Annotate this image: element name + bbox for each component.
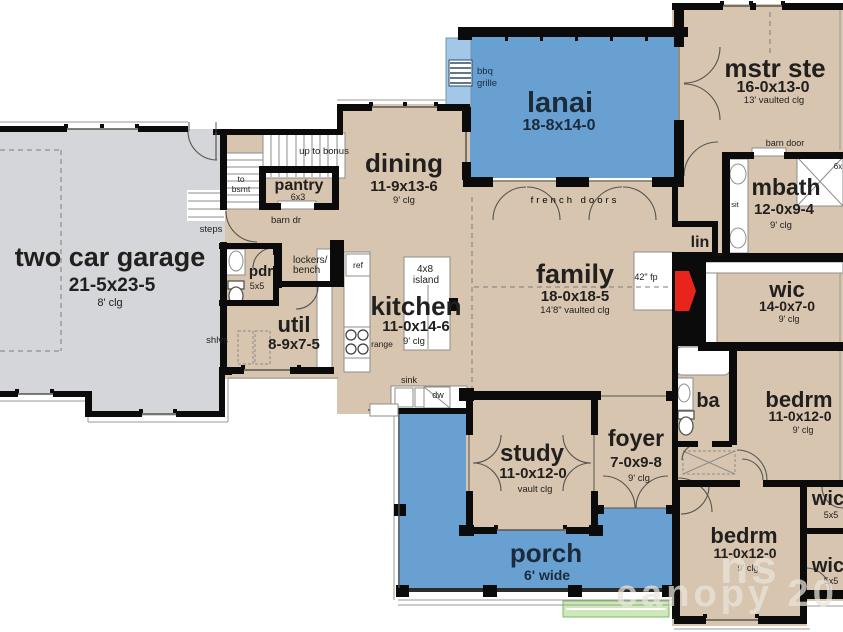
svg-text:bsmt: bsmt	[232, 184, 251, 194]
svg-text:18-0x18-5: 18-0x18-5	[541, 288, 609, 305]
svg-text:9' clg: 9' clg	[628, 473, 650, 484]
svg-text:dw: dw	[432, 390, 444, 400]
svg-text:21-5x23-5: 21-5x23-5	[69, 275, 156, 296]
svg-text:sink: sink	[401, 375, 418, 385]
svg-text:11-0x12-0: 11-0x12-0	[768, 408, 831, 424]
svg-text:barn dr: barn dr	[271, 215, 301, 226]
svg-text:shlvs: shlvs	[206, 335, 228, 346]
svg-text:ba: ba	[696, 390, 720, 412]
svg-text:14-0x7-0: 14-0x7-0	[759, 298, 815, 314]
svg-text:9' clg: 9' clg	[793, 425, 814, 435]
svg-text:11-9x13-6: 11-9x13-6	[370, 178, 438, 195]
svg-text:5x5: 5x5	[824, 510, 839, 520]
svg-text:bbq: bbq	[477, 66, 493, 77]
svg-text:mbath: mbath	[752, 174, 821, 200]
svg-text:6x3: 6x3	[291, 192, 306, 202]
svg-text:9' clg: 9' clg	[403, 336, 425, 347]
svg-text:study: study	[500, 440, 565, 467]
svg-text:wic: wic	[811, 488, 843, 510]
svg-text:sit: sit	[731, 200, 739, 209]
svg-text:6x: 6x	[834, 162, 842, 171]
svg-text:kitchen: kitchen	[370, 291, 461, 321]
svg-text:8' clg: 8' clg	[97, 297, 122, 309]
svg-text:family: family	[536, 259, 614, 289]
svg-text:7-0x9-8: 7-0x9-8	[610, 454, 662, 471]
svg-text:ref: ref	[353, 260, 364, 270]
svg-text:steps: steps	[200, 224, 223, 235]
svg-text:11-0x12-0: 11-0x12-0	[499, 465, 567, 482]
svg-text:french doors: french doors	[531, 195, 620, 206]
svg-text:11-0x14-6: 11-0x14-6	[382, 318, 450, 335]
svg-text:18-8x14-0: 18-8x14-0	[523, 117, 596, 134]
svg-text:12-0x9-4: 12-0x9-4	[754, 201, 815, 218]
svg-text:grille: grille	[477, 78, 497, 89]
svg-text:5x5: 5x5	[250, 281, 265, 291]
svg-text:to: to	[237, 174, 244, 184]
svg-text:lanai: lanai	[527, 87, 593, 119]
svg-text:vault clg: vault clg	[518, 484, 553, 495]
svg-text:6' wide: 6' wide	[524, 567, 570, 583]
svg-text:foyer: foyer	[608, 425, 664, 451]
svg-text:4x8: 4x8	[417, 264, 434, 275]
svg-text:16-0x13-0: 16-0x13-0	[737, 79, 810, 96]
svg-text:9' clg: 9' clg	[770, 220, 792, 231]
svg-text:pdr: pdr	[249, 263, 273, 280]
svg-text:barn door: barn door	[766, 138, 805, 148]
svg-text:42" fp: 42" fp	[634, 272, 657, 282]
svg-text:porch: porch	[510, 538, 582, 568]
svg-text:up to bonus: up to bonus	[299, 146, 349, 157]
svg-text:bench: bench	[293, 265, 320, 276]
svg-text:dining: dining	[365, 148, 443, 178]
svg-text:lin: lin	[691, 234, 710, 251]
svg-text:13' vaulted clg: 13' vaulted clg	[744, 95, 804, 106]
svg-text:range: range	[371, 339, 393, 349]
svg-text:canopy 20: canopy 20	[616, 573, 838, 615]
svg-text:util: util	[278, 312, 311, 337]
svg-text:9' clg: 9' clg	[393, 195, 415, 206]
svg-text:island: island	[413, 275, 439, 286]
svg-text:9' clg: 9' clg	[779, 314, 800, 324]
svg-text:8-9x7-5: 8-9x7-5	[268, 336, 320, 353]
svg-text:14’8" vaulted clg: 14’8" vaulted clg	[540, 305, 609, 316]
svg-text:two car garage: two car garage	[15, 242, 206, 272]
